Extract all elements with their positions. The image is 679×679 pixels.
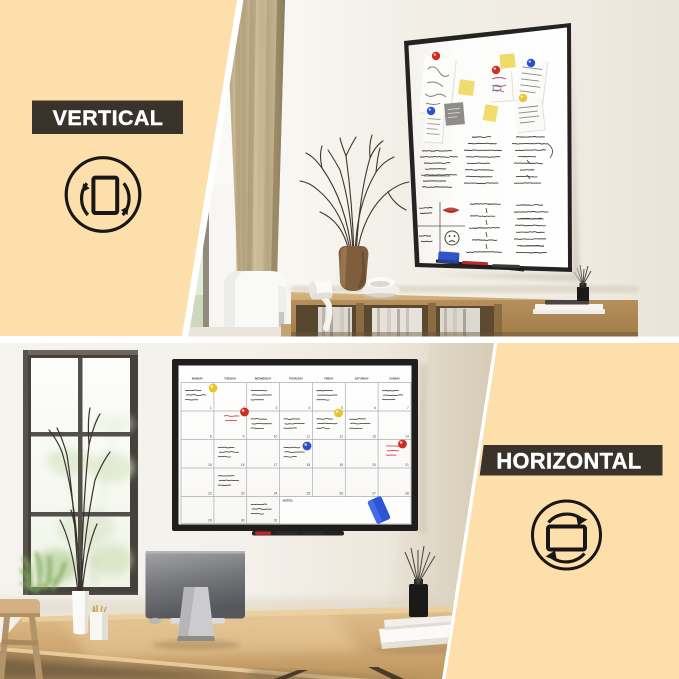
svg-text:25: 25 [307,491,311,495]
svg-text:24: 24 [274,491,278,495]
svg-text:14: 14 [405,434,409,438]
svg-text:20: 20 [372,463,376,467]
svg-text:MONDAY: MONDAY [192,377,204,381]
svg-text:THURSDAY: THURSDAY [289,377,303,381]
svg-text:23: 23 [241,491,245,495]
svg-text:9: 9 [243,434,245,438]
svg-text:7: 7 [407,406,409,410]
svg-text:18: 18 [307,463,311,467]
svg-text:27: 27 [372,491,376,495]
svg-text:16: 16 [241,463,245,467]
svg-text:TUESDAY: TUESDAY [224,377,236,381]
svg-text:13: 13 [372,434,376,438]
svg-text:31: 31 [274,518,278,522]
svg-text:22: 22 [208,491,212,495]
svg-text:5: 5 [341,406,343,410]
svg-text:11: 11 [307,434,311,438]
svg-text:28: 28 [405,491,409,495]
svg-text:1: 1 [210,406,212,410]
svg-text:19: 19 [339,463,343,467]
svg-text:SUNDAY: SUNDAY [389,377,400,381]
svg-text:NOTES:: NOTES: [283,499,294,503]
svg-text:29: 29 [208,518,212,522]
svg-text:VERTICAL: VERTICAL [53,106,164,130]
svg-text:17: 17 [274,463,278,467]
svg-text:21: 21 [405,463,409,467]
svg-text:30: 30 [241,518,245,522]
svg-text:SATURDAY: SATURDAY [355,377,369,381]
svg-text:4: 4 [308,406,310,410]
svg-text:8: 8 [210,434,212,438]
svg-text:26: 26 [339,491,343,495]
svg-text:WEDNESDAY: WEDNESDAY [255,377,272,381]
svg-text:FRIDAY: FRIDAY [324,377,334,381]
svg-text:HORIZONTAL: HORIZONTAL [496,449,641,474]
svg-text:6: 6 [374,406,376,410]
svg-text:10: 10 [274,434,278,438]
svg-text:15: 15 [208,463,212,467]
svg-text:12: 12 [339,434,343,438]
svg-text:3: 3 [276,406,278,410]
